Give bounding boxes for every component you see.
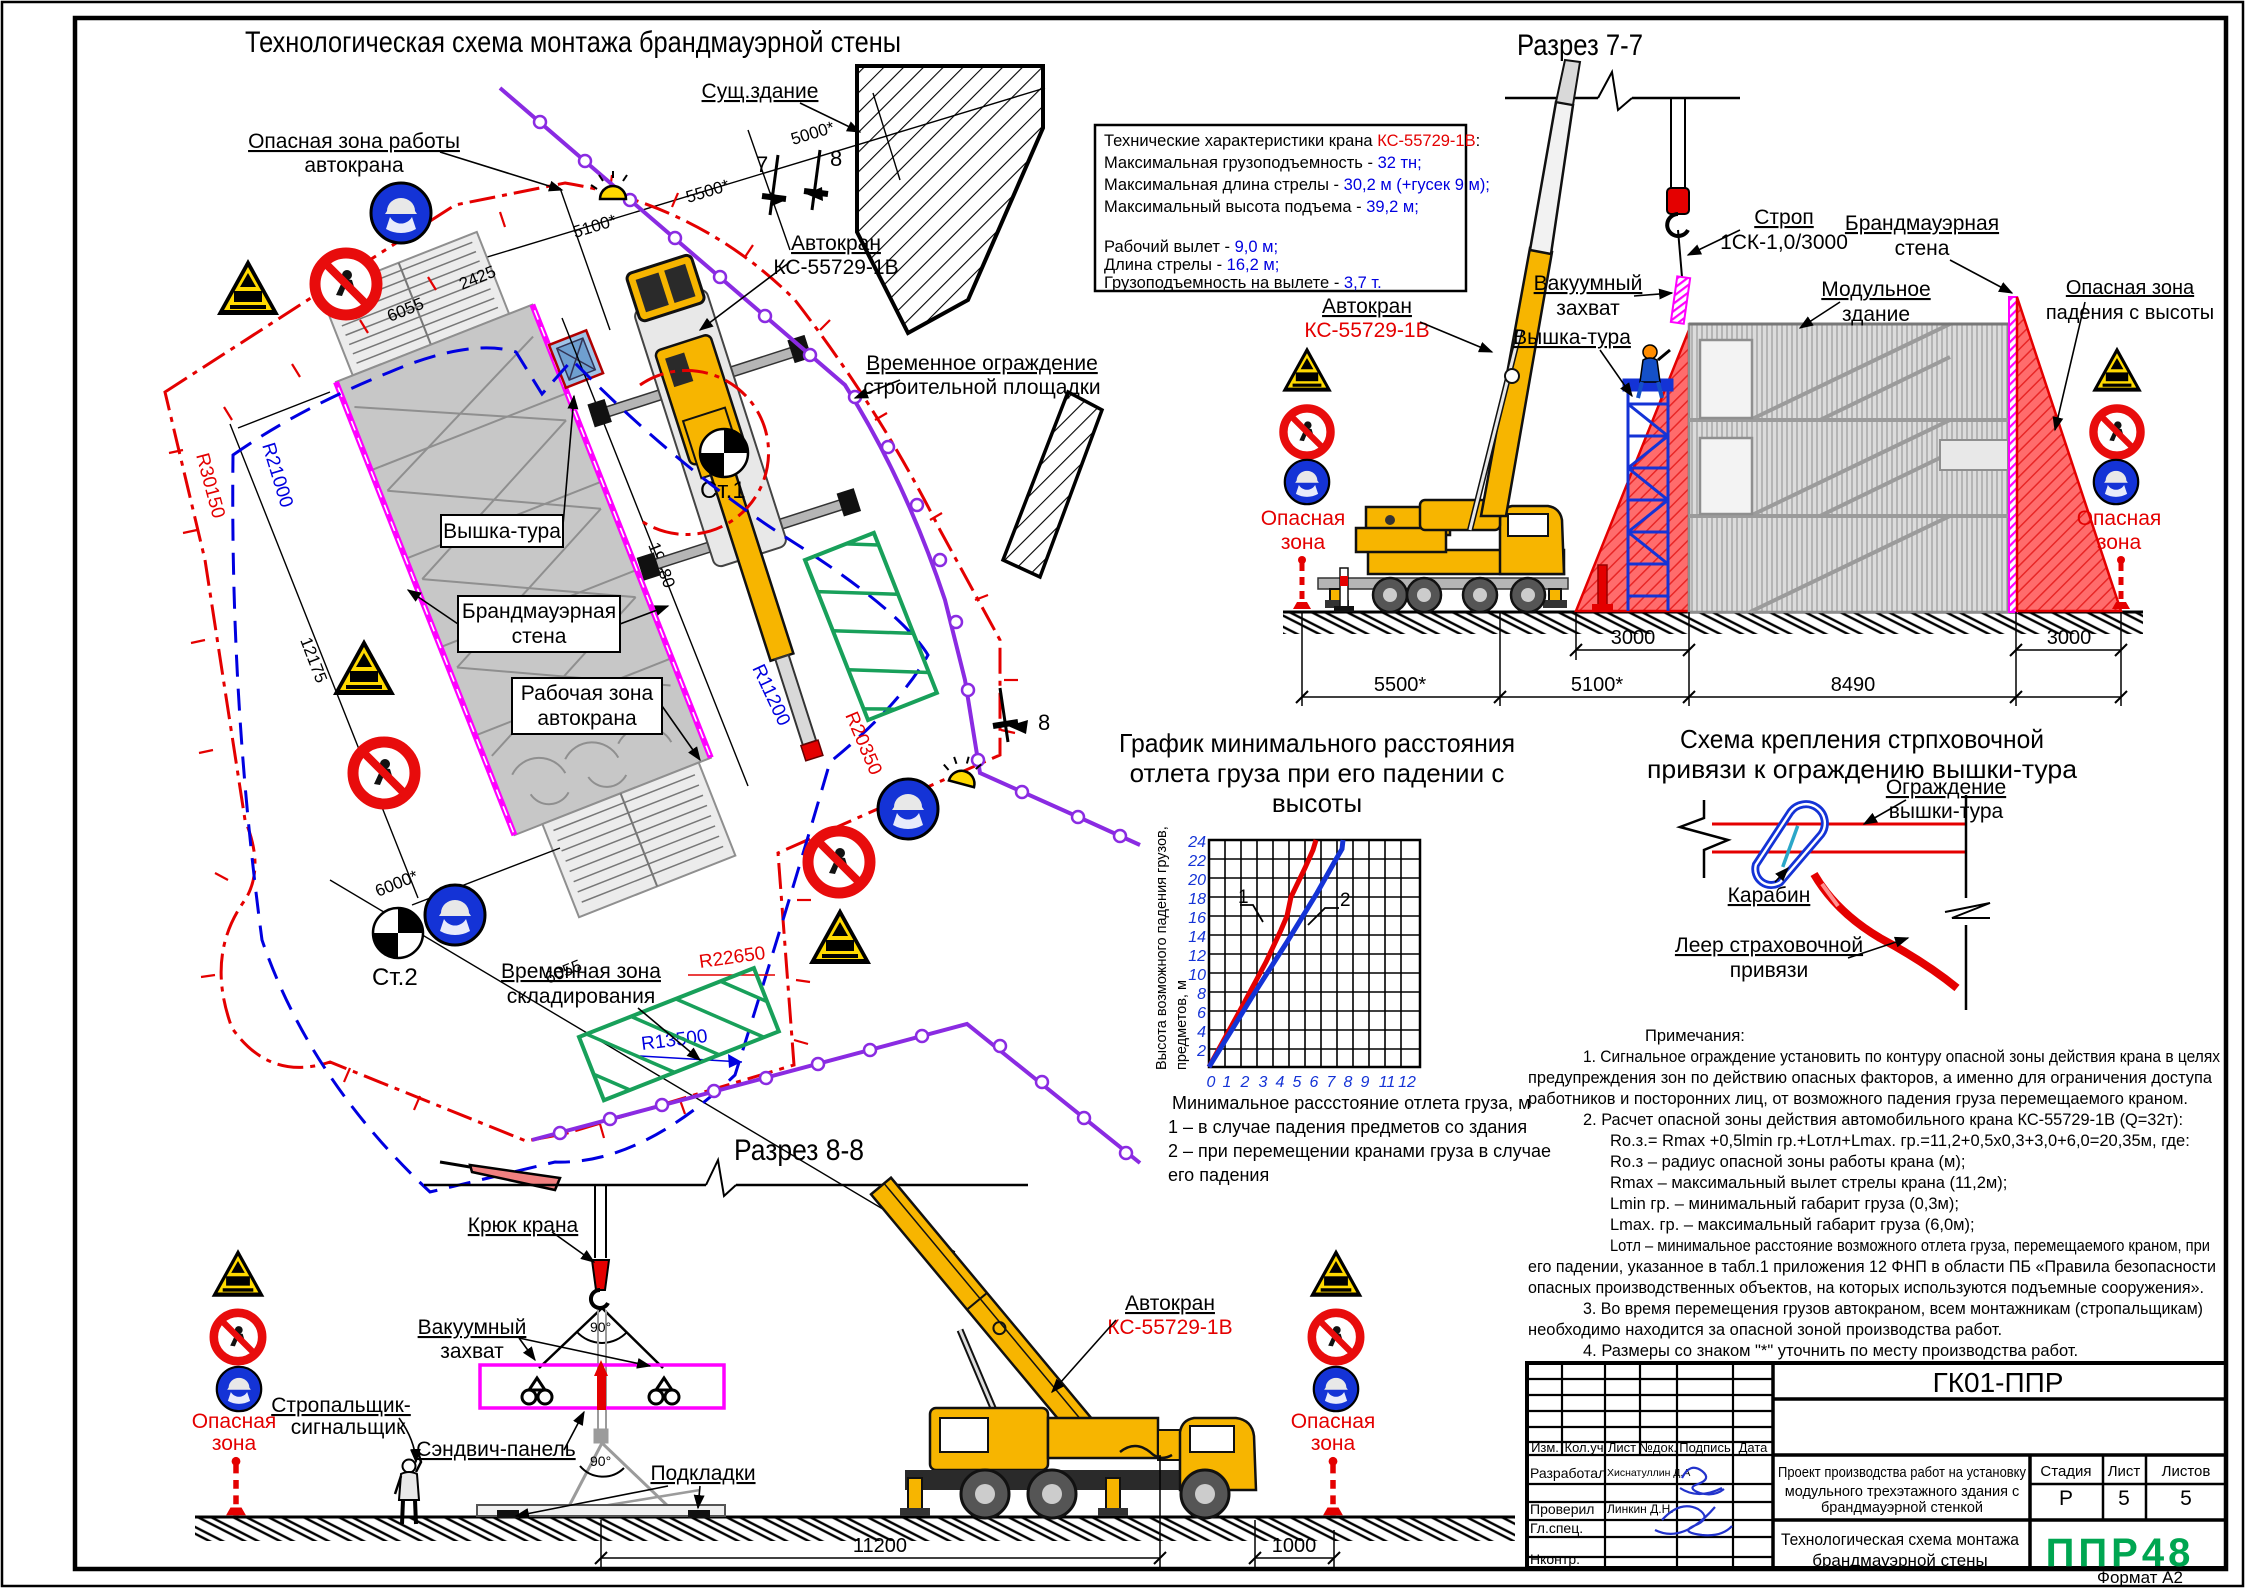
svg-text:Крюк крана: Крюк крана [468,1214,579,1237]
svg-text:2: 2 [1240,1074,1250,1091]
svg-text:0: 0 [1207,1074,1216,1091]
svg-text:Автокран: Автокран [1322,295,1412,318]
svg-text:5: 5 [1293,1074,1302,1091]
svg-text:Опасная зона работы: Опасная зона работы [248,130,460,153]
svg-text:7: 7 [1327,1074,1337,1091]
svg-text:4: 4 [1276,1074,1285,1091]
svg-text:Вышка-тура: Вышка-тура [443,520,561,543]
svg-text:Лист: Лист [2108,1463,2141,1480]
svg-text:Ro.з – радиус опасной зоны раб: Ro.з – радиус опасной зоны работы крана … [1610,1153,1965,1171]
svg-text:Вышка-тура: Вышка-тура [1513,326,1631,349]
svg-text:работников и посторонних лиц,: работников и посторонних лиц, от возможн… [1528,1090,2188,1108]
svg-text:3. Во время перемещения грузов: 3. Во время перемещения грузов автокрано… [1583,1300,2203,1318]
svg-text:его падении, указанное в табл.: его падении, указанное в табл.1 приложен… [1528,1258,2216,1276]
svg-text:Брандмауэрная: Брандмауэрная [1845,212,1999,235]
svg-text:Разработал: Разработал [1530,1465,1606,1481]
svg-text:Грузоподъемность на вылете - 3: Грузоподъемность на вылете - 3,7 т. [1104,274,1382,292]
svg-text:Нконтр.: Нконтр. [1530,1551,1580,1567]
svg-text:Проверил: Проверил [1530,1501,1594,1517]
svg-text:вышки-тура: вышки-тура [1889,800,2004,823]
svg-text:№док.: №док. [1639,1440,1677,1455]
svg-text:необходимо находится за опасно: необходимо находится за опасной зоной пр… [1528,1321,2002,1339]
svg-text:Строп: Строп [1754,206,1814,229]
svg-text:1. Сигнальное ограждение устан: 1. Сигнальное ограждение установить по к… [1583,1048,2221,1066]
svg-text:Ro.з.= Rmax +0,5lmin гр.+Lотл+: Ro.з.= Rmax +0,5lmin гр.+Lотл+Lmax. гр.=… [1610,1132,2190,1150]
svg-text:5: 5 [2118,1487,2130,1510]
svg-text:Изм.: Изм. [1531,1440,1559,1455]
svg-text:Кол.уч: Кол.уч [1565,1440,1604,1455]
svg-text:2 – при перемещении кранами гр: 2 – при перемещении кранами груза в случ… [1168,1141,1551,1161]
svg-text:ППР48: ППР48 [2046,1531,2195,1575]
svg-text:Высота возможного падения груз: Высота возможного падения грузов, [1154,826,1170,1070]
svg-text:16: 16 [1188,910,1206,927]
svg-text:Примечания:: Примечания: [1645,1027,1745,1045]
svg-text:зона: зона [1311,1432,1356,1455]
svg-text:Брандмауэрная: Брандмауэрная [462,600,616,623]
svg-text:5: 5 [2180,1487,2192,1510]
svg-text:11: 11 [1379,1074,1396,1091]
svg-text:3000: 3000 [2047,627,2092,649]
svg-text:Стропальщик-: Стропальщик- [271,1394,411,1417]
svg-text:Максимальный высота подъема -: Максимальный высота подъема - 39,2 м; [1104,198,1419,216]
svg-text:8: 8 [830,146,842,171]
svg-text:6: 6 [1310,1074,1319,1091]
svg-text:5100*: 5100* [1571,674,1623,696]
svg-text:Проект производства работ на у: Проект производства работ на установку [1778,1465,2027,1481]
svg-text:22: 22 [1187,853,1206,870]
svg-text:брандмауэрной стены: брандмауэрной стены [1812,1551,1988,1570]
svg-text:Технологическая схема монтажа: Технологическая схема монтажа брандмауэр… [245,26,901,59]
svg-text:1: 1 [1238,887,1249,908]
svg-text:3000: 3000 [1611,627,1656,649]
svg-text:Подпись: Подпись [1679,1440,1731,1455]
svg-text:зона: зона [1281,531,1326,554]
svg-text:3: 3 [1259,1074,1268,1091]
svg-text:Карабин: Карабин [1728,884,1811,907]
svg-text:4: 4 [1197,1024,1206,1041]
svg-text:18: 18 [1188,891,1206,908]
svg-text:2. Расчет опасной зоны действи: 2. Расчет опасной зоны действия автомоби… [1583,1111,2183,1129]
svg-text:Р: Р [2059,1487,2073,1510]
svg-text:Вакуумный: Вакуумный [418,1316,527,1339]
svg-text:Временная зона: Временная зона [501,960,661,983]
svg-text:стена: стена [512,625,567,648]
svg-text:1 – в случае падения предметов: 1 – в случае падения предметов со здания [1168,1117,1527,1137]
svg-text:отлета груза при его падении с: отлета груза при его падении с [1130,758,1505,788]
svg-text:захват: захват [440,1340,504,1363]
svg-text:Разрез 7-7: Разрез 7-7 [1517,29,1643,62]
svg-text:Рабочая зона: Рабочая зона [521,682,654,705]
svg-text:строительной площадки: строительной площадки [863,376,1100,399]
svg-text:КС-55729-1В: КС-55729-1В [1304,319,1429,342]
svg-text:Хиснатуллин Д.А: Хиснатуллин Д.А [1607,1467,1690,1479]
svg-text:Разрез 8-8: Разрез 8-8 [734,1134,864,1167]
svg-text:2: 2 [1340,890,1351,911]
svg-text:Максимальная грузоподъемность: Максимальная грузоподъемность - 32 тн; [1104,154,1422,172]
svg-text:Подкладки: Подкладки [650,1462,755,1485]
svg-text:Опасная: Опасная [1261,507,1346,530]
svg-text:Схема крепления стрпховочной: Схема крепления стрпховочной [1680,724,2044,754]
svg-text:5500*: 5500* [1374,674,1426,696]
svg-text:6: 6 [1197,1005,1206,1022]
svg-text:Линкин Д.Н.: Линкин Д.Н. [1607,1502,1674,1516]
svg-text:Временное ограждение: Временное ограждение [866,352,1098,375]
svg-text:Технические характеристики кра: Технические характеристики крана КС-5572… [1104,132,1480,150]
svg-text:Опасная: Опасная [2077,507,2162,530]
svg-text:Сущ.здание: Сущ.здание [702,80,819,103]
svg-text:12: 12 [1188,948,1206,965]
svg-text:Листов: Листов [2162,1463,2211,1480]
svg-text:Дата: Дата [1739,1440,1769,1455]
svg-text:высоты: высоты [1272,788,1362,818]
svg-text:14: 14 [1188,929,1206,946]
svg-text:Lотл – минимальное расстояние: Lотл – минимальное расстояние возможного… [1610,1237,2210,1255]
svg-text:Rmax – максимальный вылет стре: Rmax – максимальный вылет стрелы крана (… [1610,1174,2007,1192]
svg-text:7: 7 [756,152,768,177]
svg-text:8490: 8490 [1831,674,1876,696]
svg-text:складирования: складирования [507,985,656,1008]
svg-text:8: 8 [1038,710,1050,735]
svg-text:11200: 11200 [853,1535,907,1557]
svg-text:8: 8 [1344,1074,1353,1091]
svg-text:автокрана: автокрана [304,154,404,177]
svg-text:1СК-1,0/3000: 1СК-1,0/3000 [1720,231,1848,254]
svg-text:Гл.спец.: Гл.спец. [1530,1520,1583,1536]
svg-text:сигнальщик: сигнальщик [291,1416,406,1439]
svg-text:1: 1 [1223,1074,1232,1091]
svg-text:брандмауэрной стенкой: брандмауэрной стенкой [1821,1500,1983,1516]
svg-text:Ст.2: Ст.2 [372,964,418,991]
svg-text:Lmin гр. – минимальный габарит: Lmin гр. – минимальный габарит груза (0,… [1610,1195,1959,1213]
svg-text:Lmax. гр. – максимальный габар: Lmax. гр. – максимальный габарит груза (… [1610,1216,1975,1234]
svg-text:ГК01-ППР: ГК01-ППР [1933,1367,2064,1398]
svg-text:КС-55729-1В: КС-55729-1В [773,256,898,279]
svg-text:Автокран: Автокран [791,232,881,255]
svg-text:90°: 90° [590,1319,611,1335]
svg-text:90°: 90° [590,1453,611,1469]
svg-text:24: 24 [1187,834,1206,851]
svg-text:стена: стена [1895,237,1950,260]
svg-text:10: 10 [1188,967,1206,984]
svg-text:падения с высоты: падения с высоты [2046,302,2214,324]
svg-text:предупреждения зон по действию: предупреждения зон по действию опасных ф… [1528,1069,2213,1087]
svg-text:Вакуумный: Вакуумный [1534,272,1643,295]
svg-text:привязи: привязи [1730,959,1808,982]
svg-text:КС-55729-1В: КС-55729-1В [1107,1316,1232,1339]
svg-text:Опасная: Опасная [1291,1410,1376,1433]
svg-text:1000: 1000 [1272,1535,1317,1557]
svg-text:Сэндвич-панель: Сэндвич-панель [416,1438,575,1461]
svg-text:Технологическая схема монтажа: Технологическая схема монтажа [1781,1530,2019,1549]
svg-text:Минимальное рассстояние отлета: Минимальное рассстояние отлета груза, м [1172,1093,1531,1113]
svg-text:Рабочий вылет - 9,0 м;: Рабочий вылет - 9,0 м; [1104,238,1278,256]
svg-text:График минимального расстояния: График минимального расстояния [1119,728,1515,758]
svg-text:зона: зона [212,1432,257,1455]
svg-text:Леер страховочной: Леер страховочной [1675,934,1863,957]
svg-text:привязи к ограждению вышки-тур: привязи к ограждению вышки-тура [1647,754,2078,784]
svg-text:автокрана: автокрана [537,707,637,730]
svg-text:Лист: Лист [1608,1440,1636,1455]
svg-text:Опасная зона: Опасная зона [2066,277,2195,299]
svg-text:опасных производственных объек: опасных производственных объектов, на ко… [1528,1279,2204,1297]
svg-text:зона: зона [2097,531,2142,554]
svg-text:Автокран: Автокран [1125,1292,1215,1315]
svg-text:Ограждение: Ограждение [1886,776,2006,799]
svg-text:9: 9 [1361,1074,1370,1091]
svg-text:Стадия: Стадия [2040,1463,2091,1480]
svg-text:модульного трехэтажного здания: модульного трехэтажного здания с [1785,1484,2020,1500]
svg-text:его падения: его падения [1168,1165,1269,1185]
svg-text:20: 20 [1187,872,1206,889]
svg-text:8: 8 [1197,986,1206,1003]
svg-text:здание: здание [1842,303,1910,326]
svg-text:Опасная: Опасная [192,1410,277,1433]
svg-text:2: 2 [1196,1043,1206,1060]
svg-text:4. Размеры со знаком "*" уточн: 4. Размеры со знаком "*" уточнить по мес… [1583,1342,2078,1360]
svg-text:Модульное: Модульное [1821,278,1930,301]
svg-text:Максимальная длина стрелы - 30: Максимальная длина стрелы - 30,2 м (+гус… [1104,176,1490,194]
svg-text:захват: захват [1556,297,1620,320]
svg-text:12: 12 [1398,1074,1416,1091]
svg-text:предметов, м: предметов, м [1174,980,1190,1070]
svg-text:Длина стрелы - 16,2 м;: Длина стрелы - 16,2 м; [1104,256,1279,274]
